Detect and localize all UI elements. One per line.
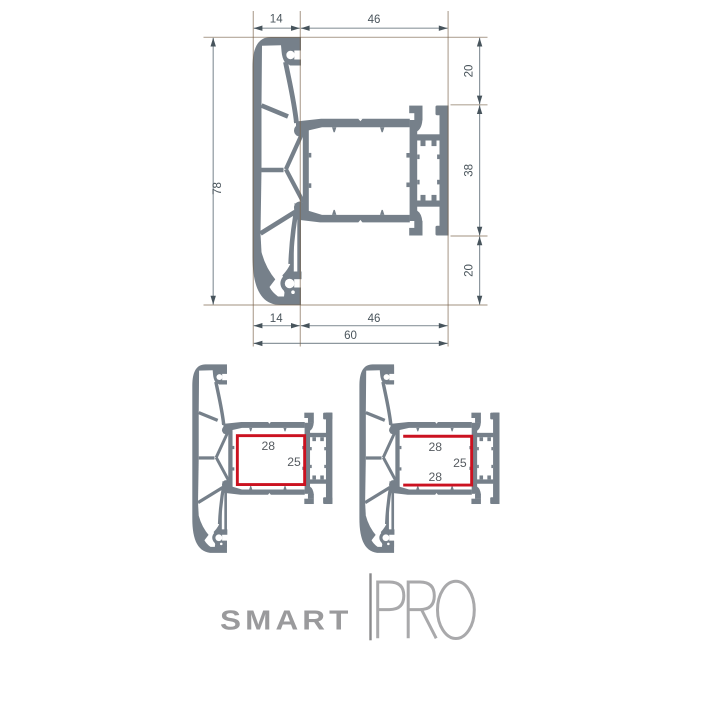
svg-text:20: 20 bbox=[464, 264, 476, 277]
svg-text:46: 46 bbox=[368, 313, 381, 325]
svg-text:20: 20 bbox=[464, 65, 476, 78]
svg-text:38: 38 bbox=[464, 164, 476, 177]
svg-text:28: 28 bbox=[429, 440, 443, 454]
svg-text:28: 28 bbox=[262, 439, 276, 453]
svg-text:60: 60 bbox=[344, 330, 357, 342]
svg-text:14: 14 bbox=[270, 313, 283, 325]
svg-text:28: 28 bbox=[429, 470, 443, 484]
svg-text:78: 78 bbox=[212, 182, 224, 195]
svg-text:SMART: SMART bbox=[220, 606, 353, 637]
svg-text:25: 25 bbox=[287, 455, 301, 469]
svg-text:14: 14 bbox=[270, 13, 283, 25]
svg-text:25: 25 bbox=[453, 456, 467, 470]
svg-text:46: 46 bbox=[368, 14, 381, 26]
